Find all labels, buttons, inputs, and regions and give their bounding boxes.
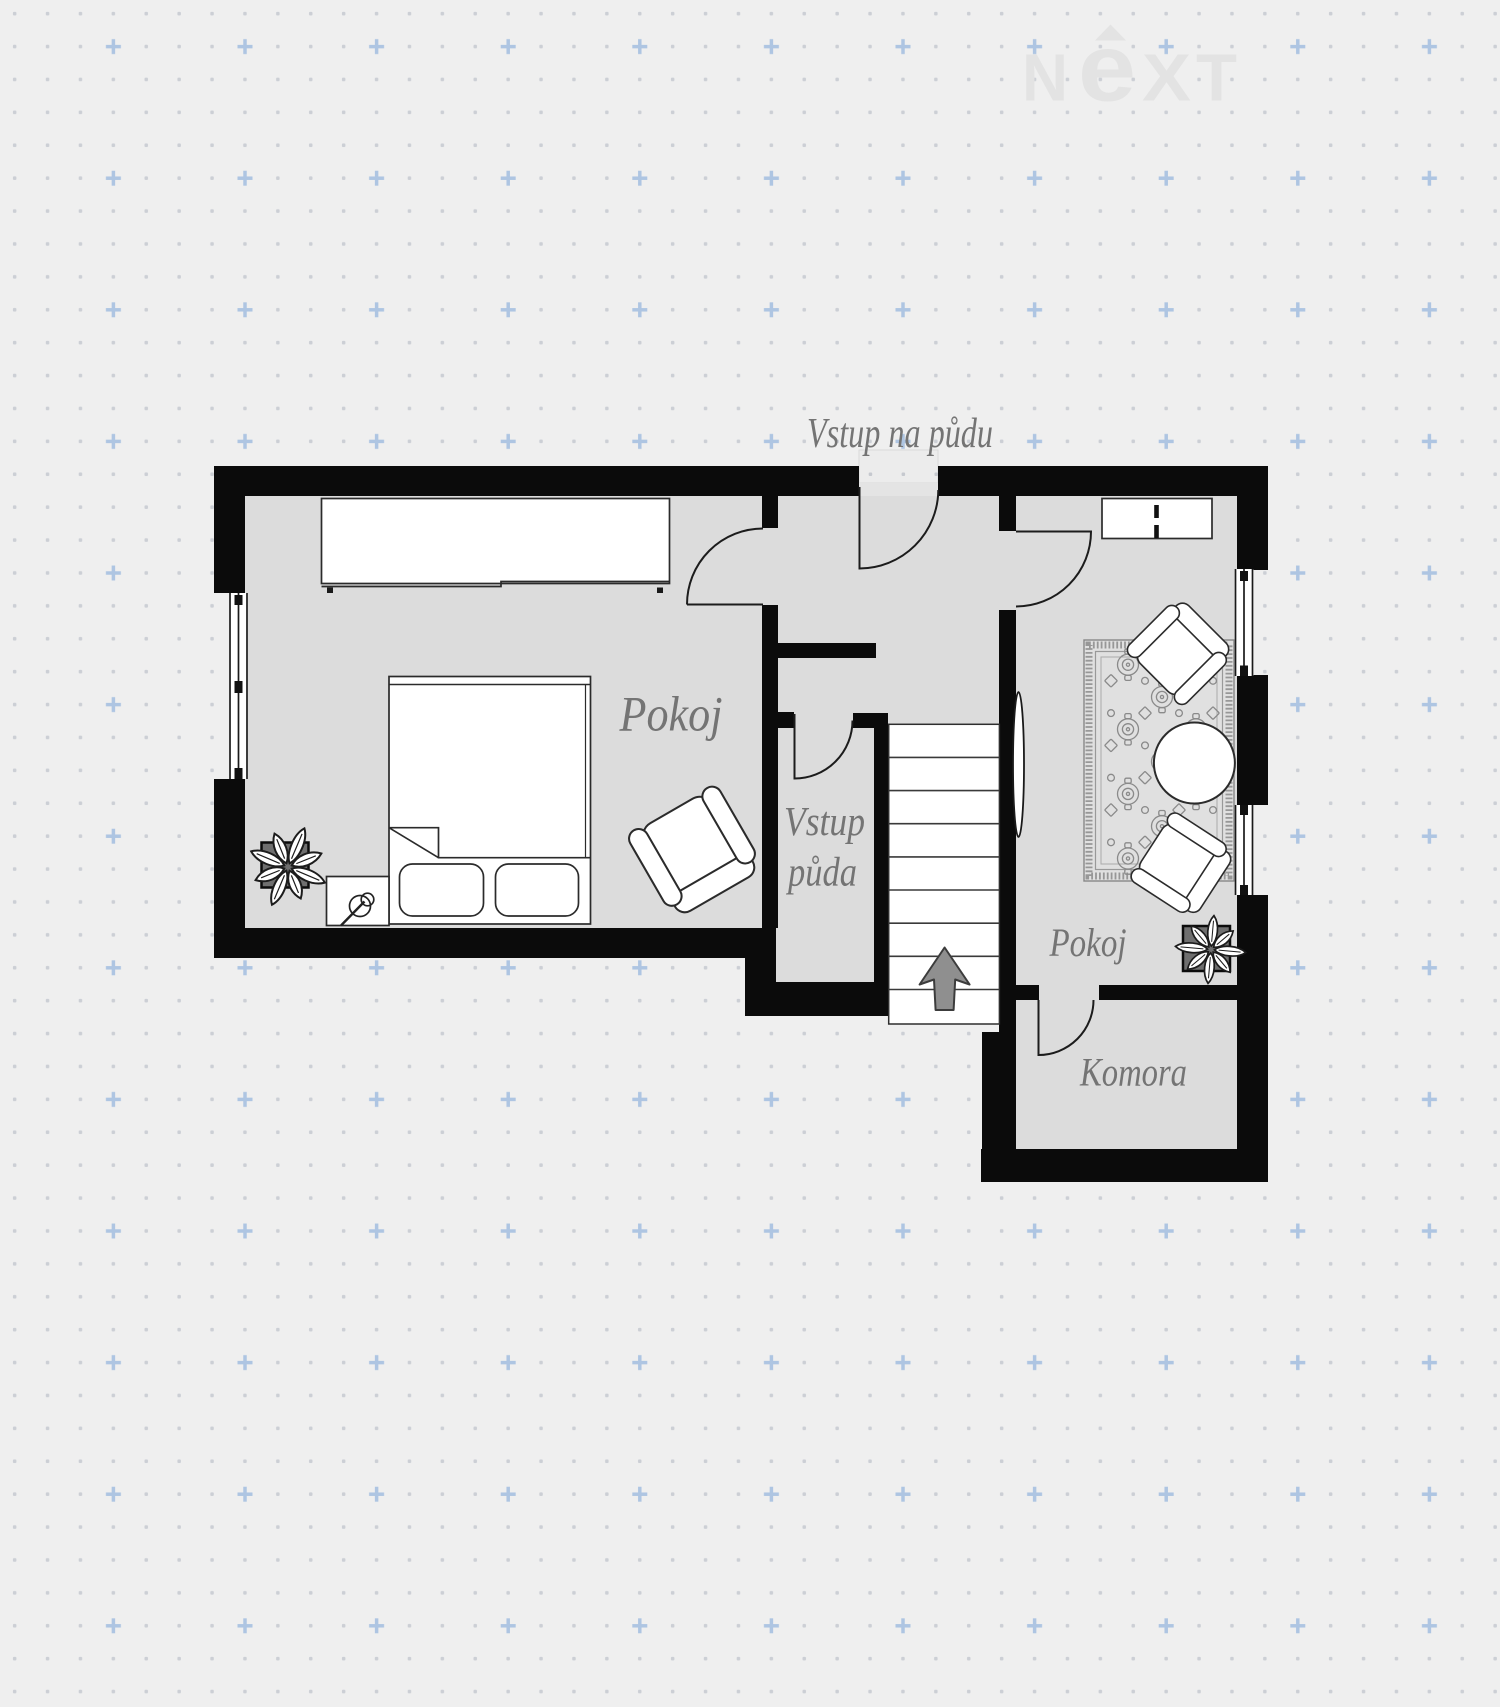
svg-text:Komora: Komora <box>1079 1050 1187 1095</box>
svg-text:Pokoj: Pokoj <box>619 686 723 742</box>
svg-text:T: T <box>1196 41 1237 116</box>
svg-text:N: N <box>1022 41 1068 116</box>
svg-text:půda: půda <box>785 849 857 895</box>
svg-text:Pokoj: Pokoj <box>1049 920 1127 965</box>
svg-text:Vstup: Vstup <box>784 798 865 844</box>
svg-text:X: X <box>1142 41 1191 116</box>
svg-text:Vstup na půdu: Vstup na půdu <box>807 411 993 457</box>
